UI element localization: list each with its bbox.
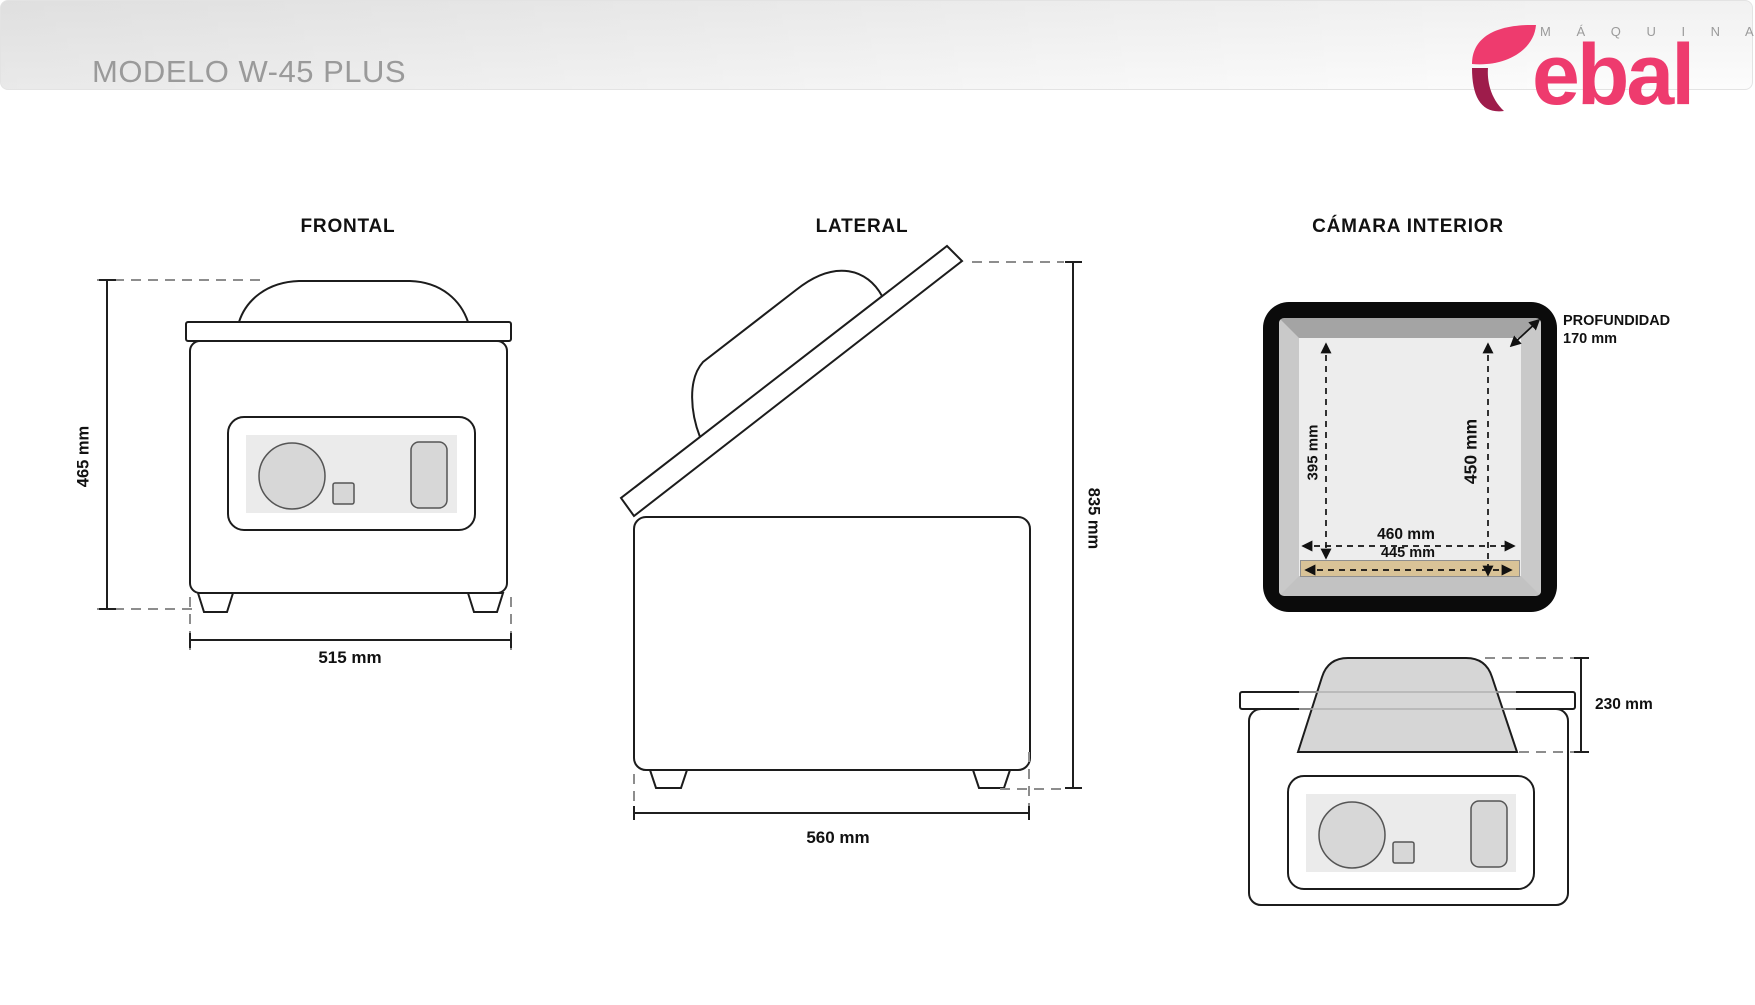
frontal-control-panel [228,417,475,530]
frontal-title: FRONTAL [198,216,498,238]
frontal-foot-left [198,593,233,612]
camara-depth-value: 170 mm [1563,331,1670,349]
camara-depth-label: PROFUNDIDAD 170 mm [1563,313,1670,348]
dome-view-body [1249,709,1568,905]
frontal-dome [239,281,468,322]
lateral-depth-label: 560 mm [738,828,938,848]
dome-view-lid-plate [1240,692,1575,709]
lateral-foot-right [973,770,1010,788]
frontal-panel-inset [246,435,457,513]
camara-depth-label-text: PROFUNDIDAD [1563,313,1670,331]
lateral-dome [692,271,882,437]
lateral-title: LATERAL [712,216,1012,238]
model-title: MODELO W-45 PLUS [92,27,406,117]
camara-inner-height-right-label: 450 mm [1461,392,1482,512]
lateral-foot-left [650,770,687,788]
spec-sheet: MODELO W-45 PLUS M Á Q U I N A S ebal [0,0,1755,1005]
frontal-drawing [97,280,511,650]
dome-view-gauge [1319,802,1385,868]
frontal-height-label: 465 mm [75,397,94,517]
febal-logo: M Á Q U I N A S ebal [1468,18,1728,118]
dome-height-label: 230 mm [1595,696,1653,714]
dome-view-dome [1298,658,1517,752]
dome-height-drawing [1240,658,1589,905]
lateral-open-lid [621,246,962,516]
dome-view-button-panel [1471,801,1507,867]
brand-wordmark: ebal [1532,32,1692,118]
camara-inner-height-left-label: 395 mm [1305,393,1322,513]
camara-seal-bar-label: 445 mm [1308,545,1508,561]
camara-inner-width-label: 460 mm [1306,526,1506,544]
frontal-lid-plate [186,322,511,341]
lateral-body [634,517,1030,770]
frontal-gauge [259,443,325,509]
lateral-height-label: 835 mm [1084,459,1103,579]
camara-title: CÁMARA INTERIOR [1258,216,1558,238]
frontal-foot-right [468,593,503,612]
dome-view-panel-inset [1306,794,1516,872]
frontal-body [190,341,507,593]
dome-view-switch [1393,842,1414,863]
frontal-button-panel [411,442,447,508]
dome-view-control-panel [1288,776,1534,889]
febal-logo-f-icon [1468,22,1540,114]
chamber-seal-bar [1300,560,1520,577]
frontal-width-label: 515 mm [250,648,450,668]
lateral-drawing [621,246,1082,820]
frontal-switch [333,483,354,504]
